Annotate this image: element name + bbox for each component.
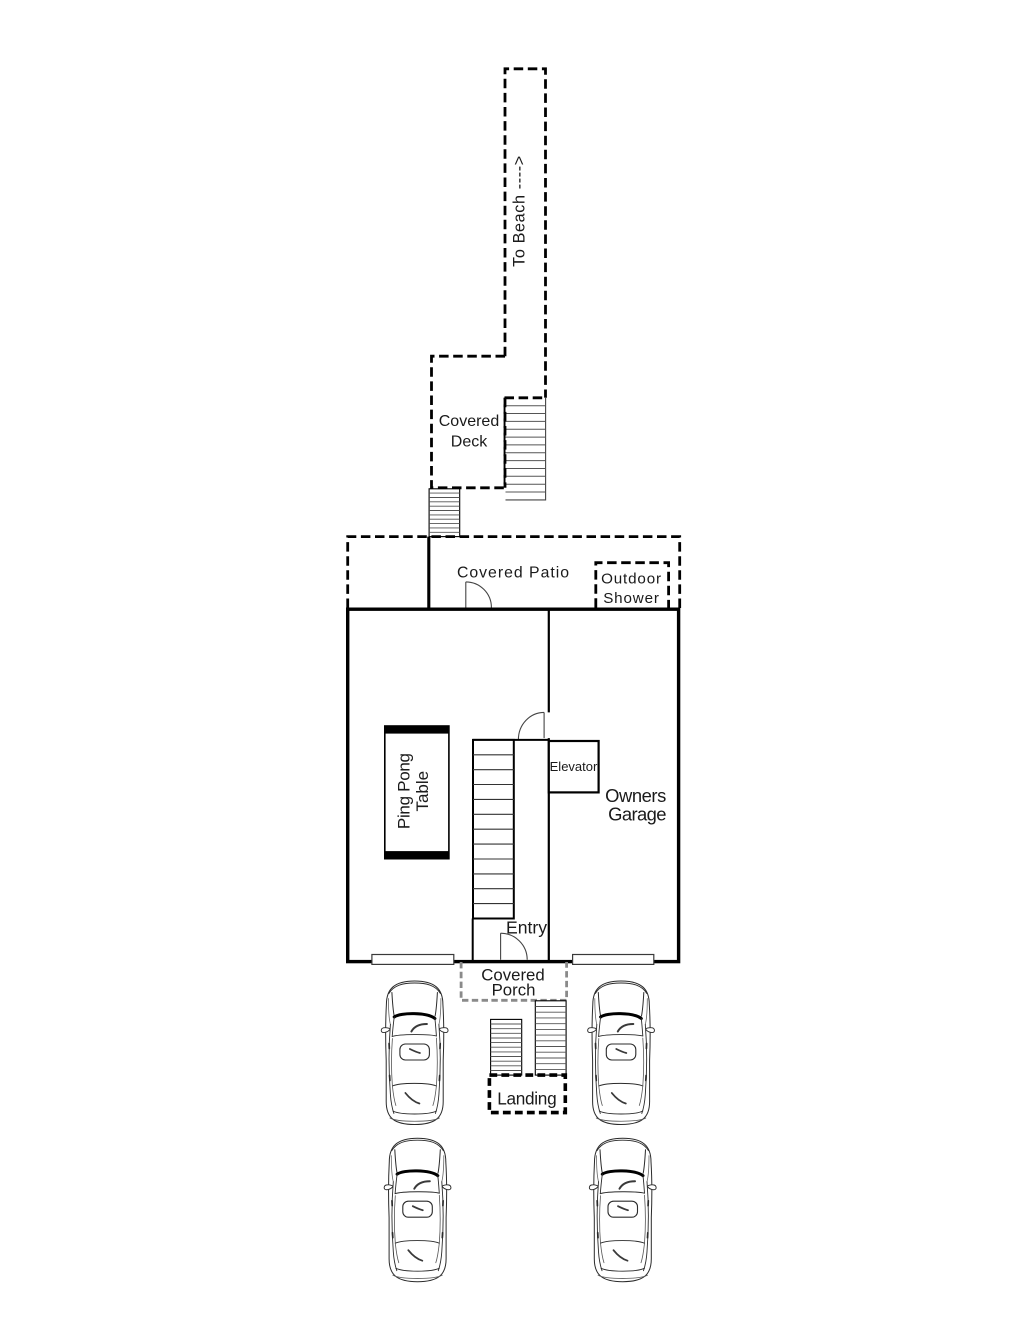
svg-text:Outdoor: Outdoor — [601, 571, 662, 588]
svg-text:Ping Pong: Ping Pong — [394, 753, 413, 829]
svg-text:Shower: Shower — [603, 590, 660, 607]
svg-text:Landing: Landing — [497, 1089, 556, 1109]
svg-text:Covered: Covered — [439, 413, 499, 430]
svg-text:Deck: Deck — [451, 434, 488, 451]
svg-text:Garage: Garage — [608, 804, 666, 825]
svg-text:Porch: Porch — [492, 981, 536, 1000]
svg-text:Entry: Entry — [506, 918, 547, 938]
svg-text:Covered Patio: Covered Patio — [457, 565, 570, 582]
svg-text:Elevator: Elevator — [550, 759, 598, 774]
svg-text:Table: Table — [413, 771, 432, 812]
svg-text:To Beach ---->: To Beach ----> — [511, 155, 529, 267]
